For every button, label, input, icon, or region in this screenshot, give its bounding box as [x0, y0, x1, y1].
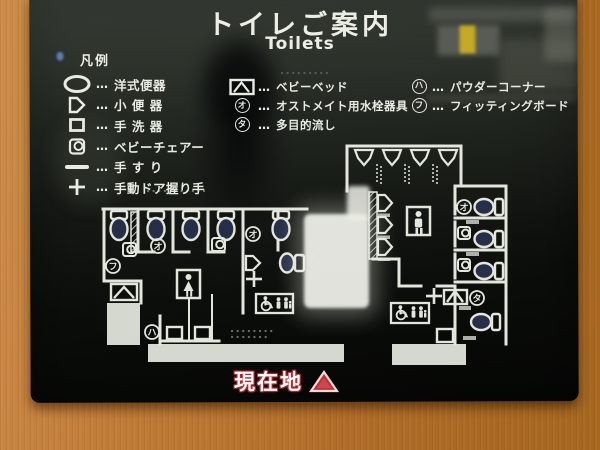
- powder-corner-marker-icon: ハ: [412, 79, 427, 94]
- current-location: 現在地: [234, 366, 340, 396]
- baby-chair-icon: [58, 138, 96, 155]
- baby-bed-icon: [226, 78, 258, 96]
- sign-board: [29, 0, 578, 403]
- legend-item-baby-bed: … ベビーベッド: [226, 77, 408, 96]
- legend-left-column: … 洋式便器 … 小 便 器 … 手 洗 器 … ベビーチェアー: [58, 74, 205, 198]
- urinal-icon: [58, 96, 96, 114]
- legend-header: 凡例: [80, 50, 110, 69]
- ostomate-marker-icon: オ: [235, 98, 250, 113]
- legend-item-handrail: … 手 す り: [58, 156, 205, 177]
- legend-item-western-toilet: … 洋式便器: [58, 74, 205, 95]
- legend-item-ostomate: オ … オストメイト用水栓器具: [226, 96, 408, 115]
- handrail-icon: [58, 163, 96, 171]
- legend-item-baby-chair: … ベビーチェアー: [58, 136, 205, 157]
- multipurpose-sink-marker-icon: タ: [235, 117, 250, 132]
- washbasin-icon: [58, 117, 96, 133]
- fitting-board-marker-icon: フ: [412, 98, 427, 113]
- western-toilet-icon: [58, 74, 96, 94]
- current-location-marker-icon: [308, 369, 340, 394]
- legend-item-door-handle: … 手動ドア握り手: [58, 177, 205, 198]
- legend-item-washbasin: … 手 洗 器: [58, 115, 205, 136]
- legend-item-multipurpose-sink: タ … 多目的流し: [226, 115, 408, 134]
- legend-right-column: ハ … パウダーコーナー フ … フィッティングボード: [406, 77, 569, 115]
- legend-item-powder-corner: ハ … パウダーコーナー: [406, 77, 569, 96]
- current-location-label: 現在地: [234, 366, 303, 396]
- manual-door-handle-icon: [58, 177, 96, 197]
- legend-item-fitting-board: フ … フィッティングボード: [406, 96, 569, 115]
- legend-item-urinal: … 小 便 器: [58, 95, 205, 116]
- photo-of-toilet-guide-sign: オ フ ハ オ オ タ トイレご案内 Toilets 凡例 … 洋式便器: [0, 0, 600, 450]
- legend-middle-column: … ベビーベッド オ … オストメイト用水栓器具 タ … 多目的流し: [226, 77, 408, 135]
